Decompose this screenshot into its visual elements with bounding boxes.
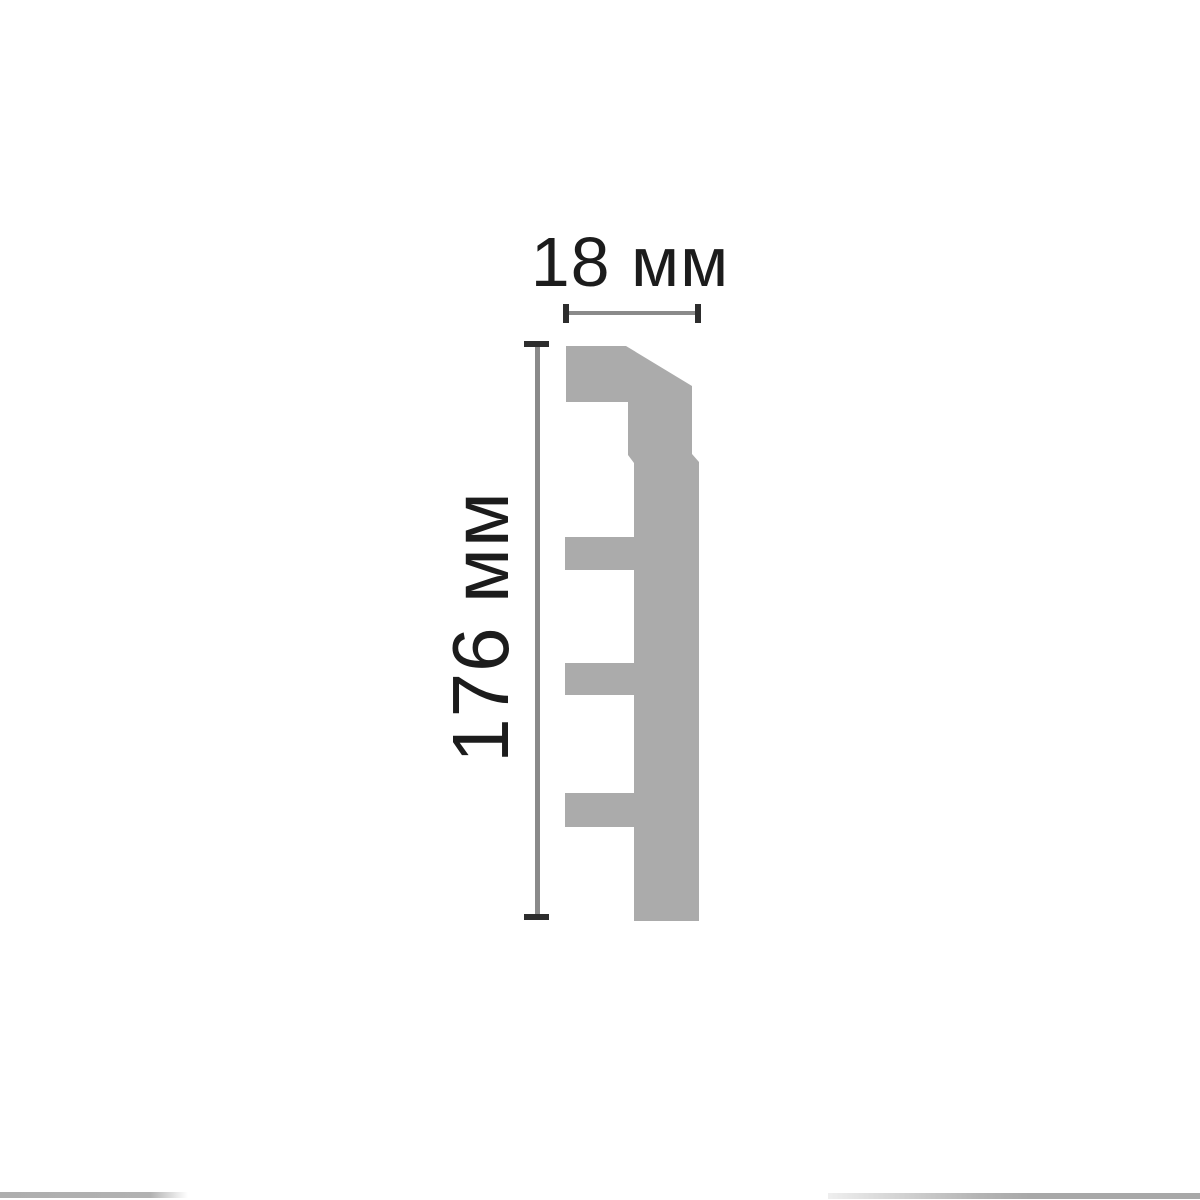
height-dimension [524, 341, 549, 920]
skirting-profile-cross-section [565, 346, 699, 921]
height-dimension-tick-bottom [524, 914, 549, 920]
product-dimension-diagram: 18 мм 176 мм [0, 0, 1200, 1200]
height-dimension-tick-top [524, 341, 549, 347]
height-dimension-label: 176 мм [441, 491, 521, 763]
width-dimension-tick-right [695, 304, 701, 323]
width-dimension [563, 304, 701, 323]
width-dimension-line [566, 311, 698, 315]
height-dimension-line [535, 344, 540, 916]
profile-drawing [0, 0, 1200, 1200]
bottom-edge-artifact-left [0, 1192, 188, 1198]
width-dimension-tick-left [563, 304, 569, 323]
width-dimension-label: 18 мм [330, 227, 930, 297]
bottom-edge-artifact-right [828, 1193, 1200, 1199]
